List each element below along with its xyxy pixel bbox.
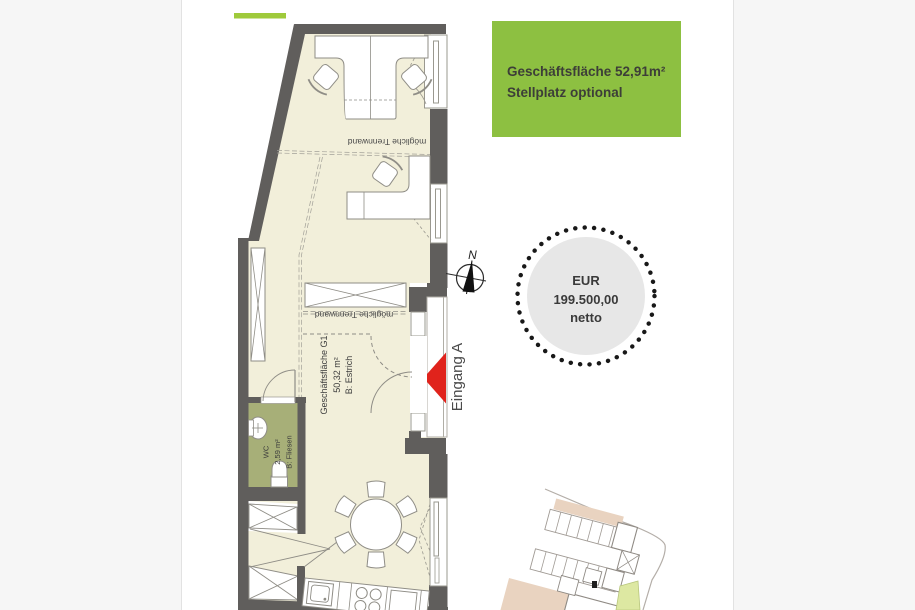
svg-text:mögliche Trennwand: mögliche Trennwand — [315, 310, 394, 320]
svg-text:B: Estrich: B: Estrich — [344, 356, 354, 395]
svg-text:Geschäftsfläche G1: Geschäftsfläche G1 — [319, 335, 329, 414]
svg-text:199.500,00: 199.500,00 — [553, 292, 618, 307]
svg-text:B: Fliesen: B: Fliesen — [285, 435, 294, 468]
svg-text:50,32 m²: 50,32 m² — [332, 357, 342, 393]
svg-text:Geschäftsfläche 52,91m²: Geschäftsfläche 52,91m² — [507, 64, 666, 79]
svg-text:Stellplatz optional: Stellplatz optional — [507, 85, 623, 100]
svg-text:WC: WC — [262, 445, 271, 458]
svg-text:N: N — [468, 248, 477, 262]
svg-text:netto: netto — [570, 310, 602, 325]
svg-text:EUR: EUR — [572, 273, 600, 288]
svg-text:mögliche Trennwand: mögliche Trennwand — [348, 137, 427, 147]
svg-text:2,59 m²: 2,59 m² — [273, 439, 282, 465]
svg-text:Eingang A: Eingang A — [449, 343, 466, 411]
